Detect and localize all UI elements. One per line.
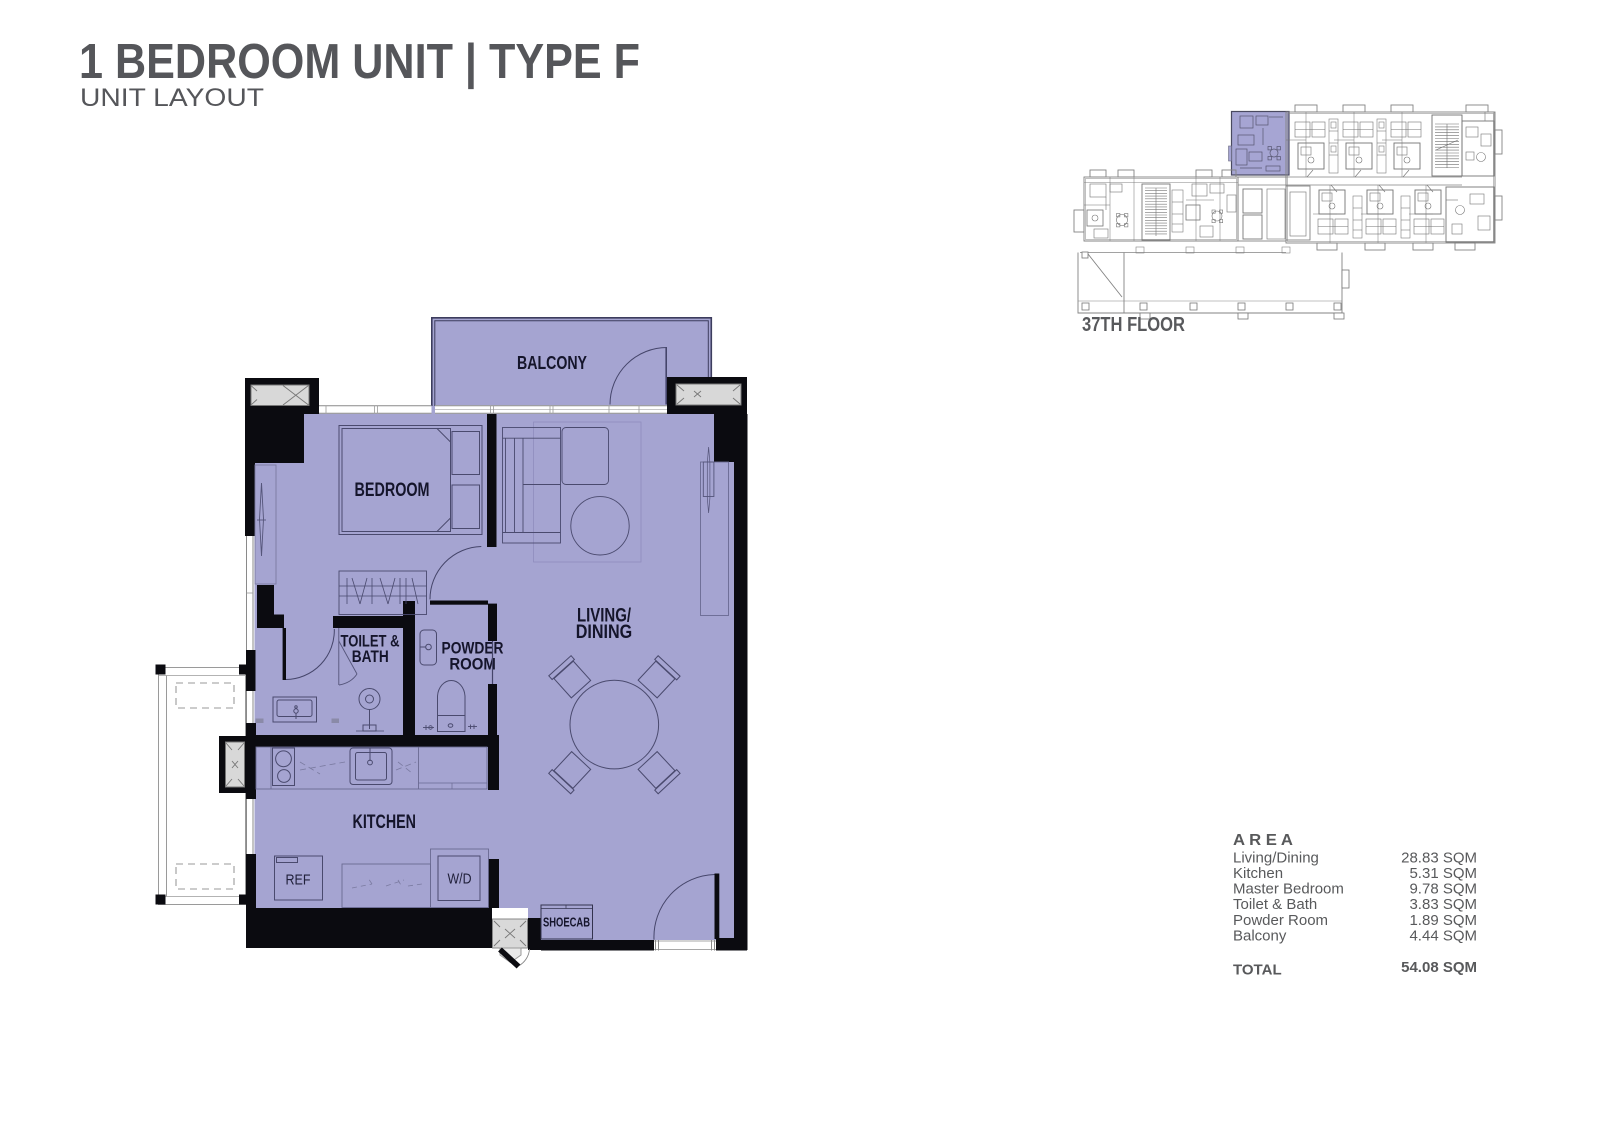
svg-text:1.89 SQM: 1.89 SQM [1409,912,1477,929]
svg-text:3.83 SQM: 3.83 SQM [1409,896,1477,913]
svg-text:SHOECAB: SHOECAB [543,916,590,930]
svg-text:5.31 SQM: 5.31 SQM [1409,865,1477,882]
svg-text:BEDROOM: BEDROOM [355,480,430,501]
svg-text:UNIT LAYOUT: UNIT LAYOUT [80,84,264,112]
svg-text:Living/Dining: Living/Dining [1233,849,1319,866]
svg-text:Toilet & Bath: Toilet & Bath [1233,896,1317,913]
svg-text:4.44 SQM: 4.44 SQM [1409,927,1477,944]
svg-text:BALCONY: BALCONY [517,352,587,373]
svg-text:54.08 SQM: 54.08 SQM [1401,959,1477,976]
svg-text:TOTAL: TOTAL [1233,961,1282,978]
svg-text:ROOM: ROOM [449,655,496,674]
svg-text:Powder Room: Powder Room [1233,912,1328,929]
svg-text:BATH: BATH [352,647,389,666]
svg-text:Kitchen: Kitchen [1233,865,1283,882]
svg-text:Master Bedroom: Master Bedroom [1233,881,1344,898]
svg-text:W/D: W/D [448,871,472,888]
svg-text:DINING: DINING [576,622,633,643]
svg-text:REF: REF [286,872,311,889]
svg-text:Balcony: Balcony [1233,927,1287,944]
svg-text:1 BEDROOM UNIT | TYPE F: 1 BEDROOM UNIT | TYPE F [79,35,640,89]
svg-text:37TH FLOOR: 37TH FLOOR [1082,314,1185,336]
svg-text:9.78 SQM: 9.78 SQM [1409,881,1477,898]
svg-text:28.83 SQM: 28.83 SQM [1401,849,1477,866]
svg-text:A R E A: A R E A [1233,832,1293,849]
svg-text:KITCHEN: KITCHEN [353,812,417,833]
